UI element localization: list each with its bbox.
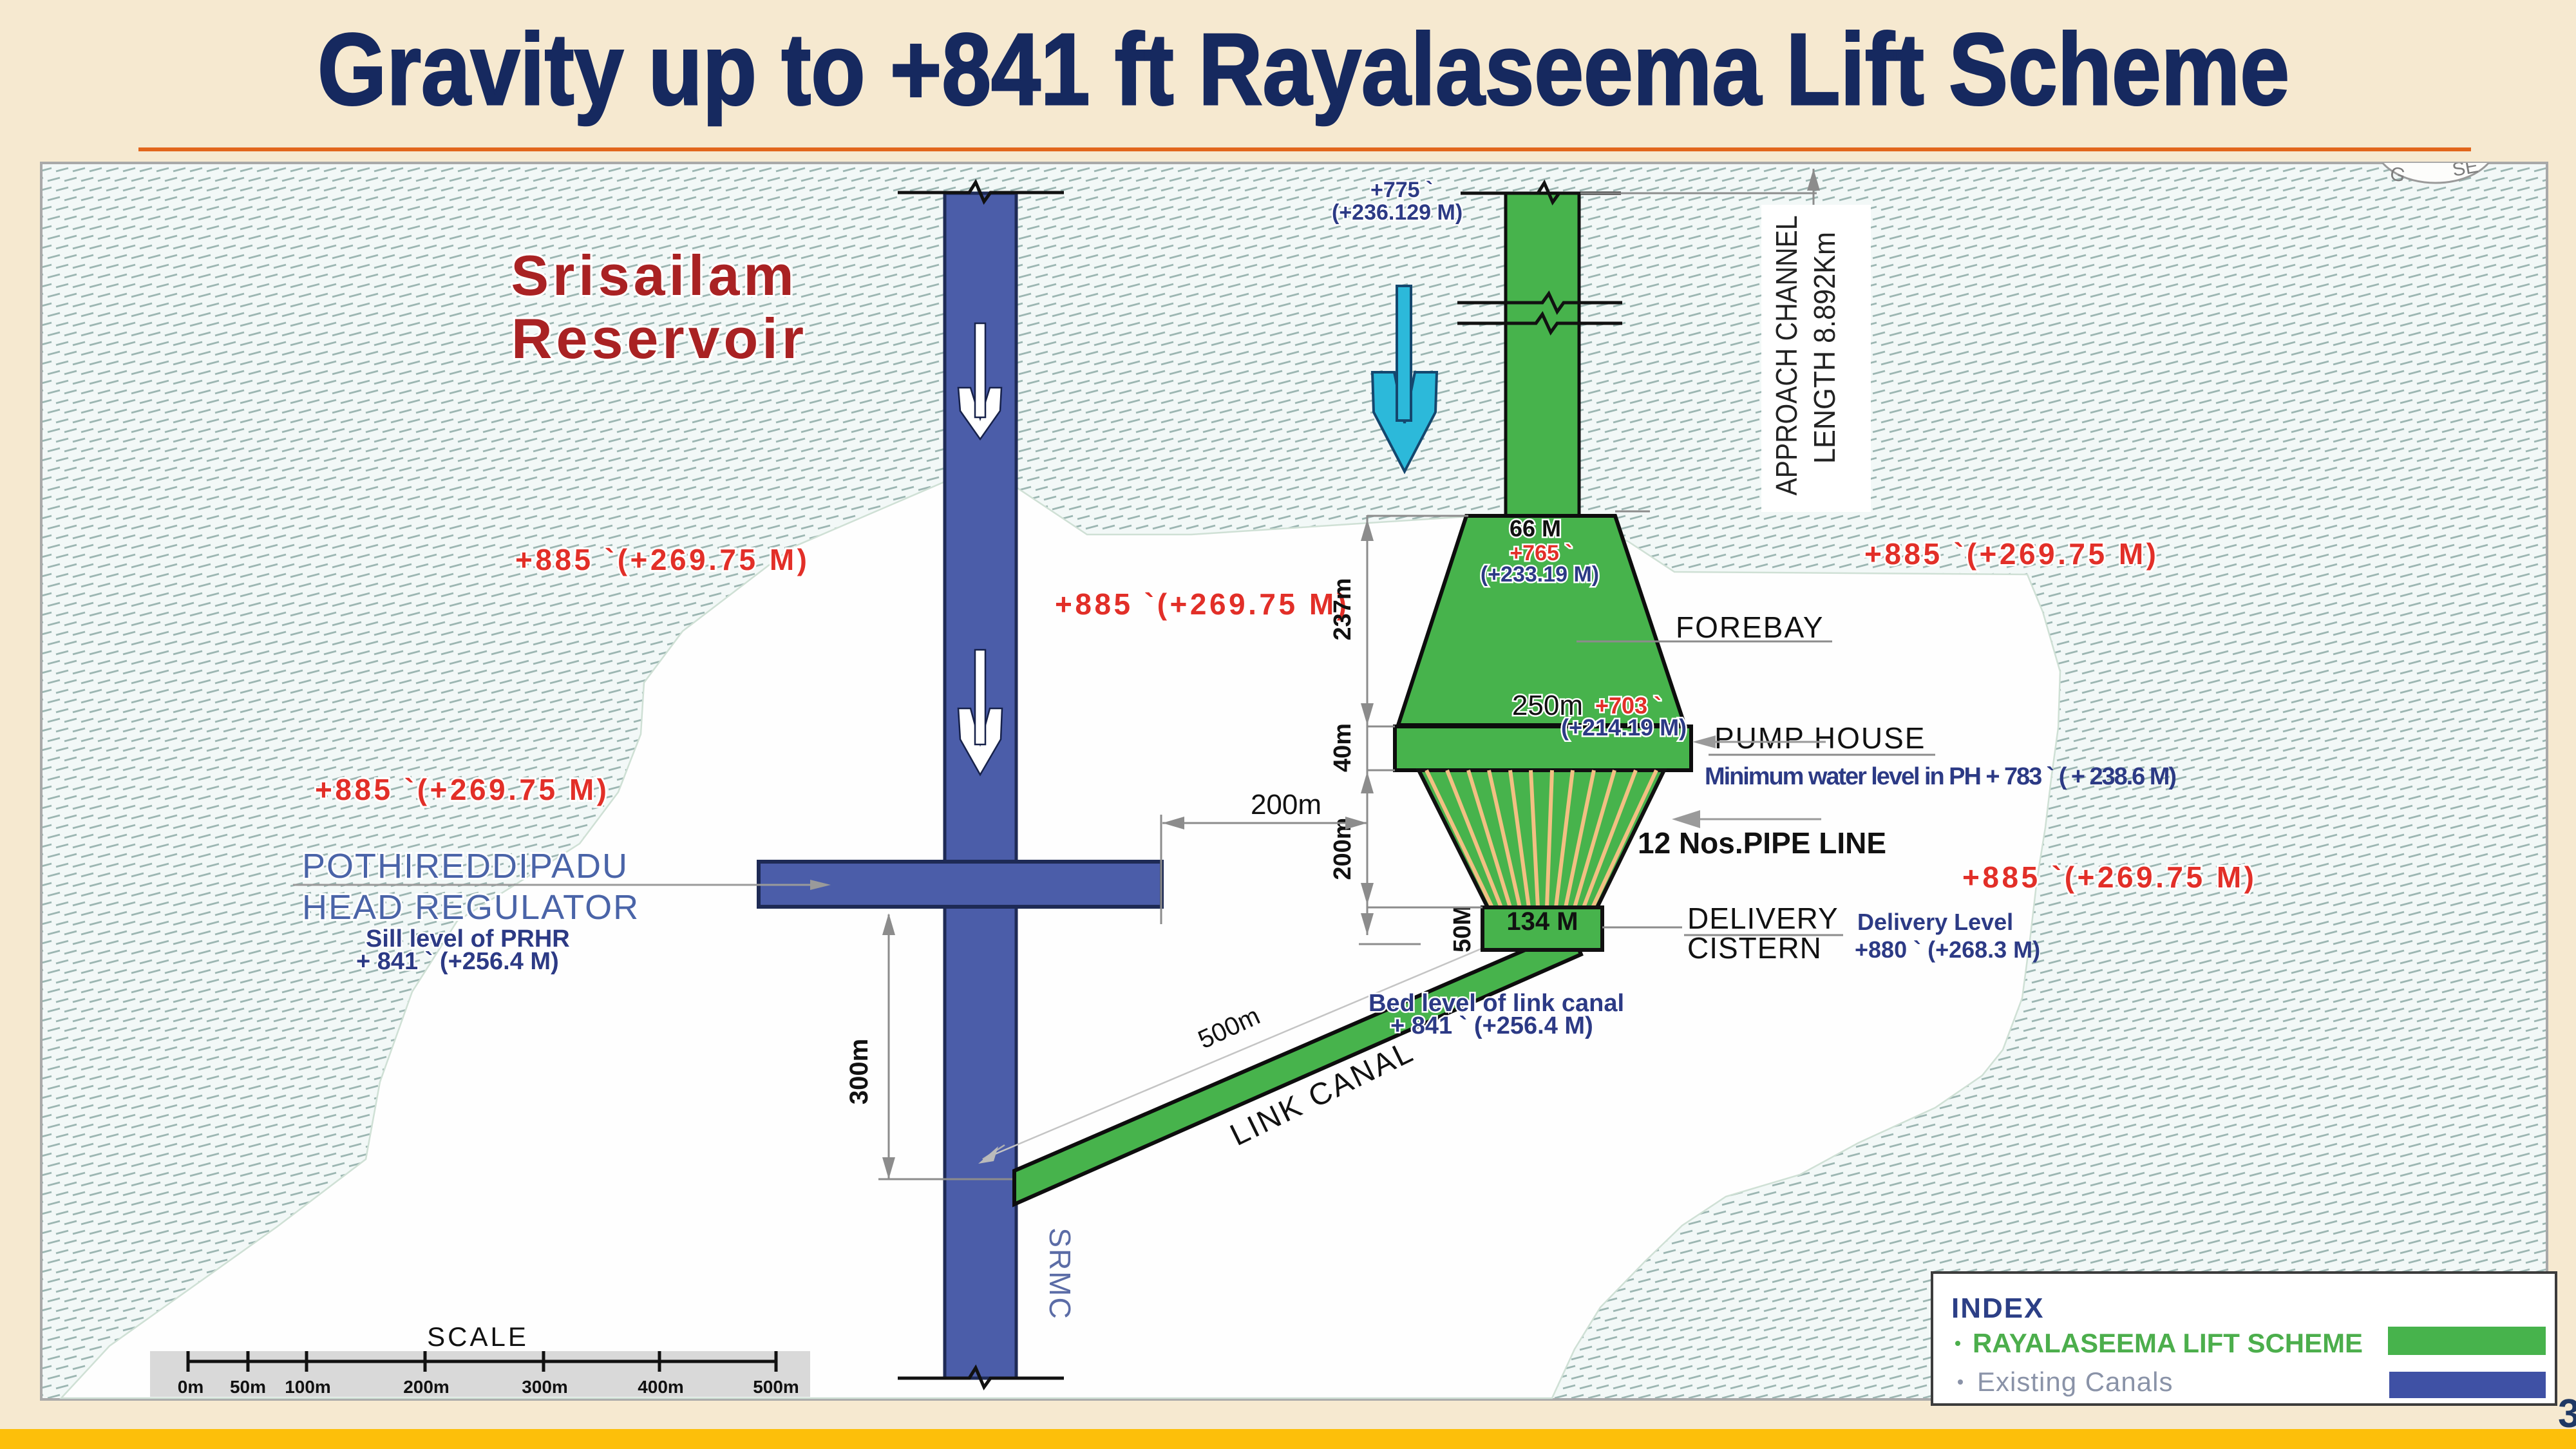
svg-text:+885 `(+269.75 M): +885 `(+269.75 M) [1055,587,1350,621]
svg-text:66 M: 66 M [1510,515,1561,542]
svg-text:300m: 300m [845,1039,873,1104]
svg-text:+885 `(+269.75 M): +885 `(+269.75 M) [315,773,610,806]
svg-text:(+214.19 M): (+214.19 M) [1561,714,1687,741]
svg-text:CISTERN: CISTERN [1687,931,1822,965]
svg-text:+ 841 ` (+256.4 M): + 841 ` (+256.4 M) [356,948,559,975]
svg-text:(+233.19 M): (+233.19 M) [1481,562,1599,587]
svg-text:Gravity up to +841 ft Rayalase: Gravity up to +841 ft Rayalaseema Lift S… [317,13,2289,126]
svg-text:DELIVERY: DELIVERY [1687,902,1839,935]
svg-text:Srisailam: Srisailam [511,243,797,307]
svg-text:+880 ` (+268.3 M): +880 ` (+268.3 M) [1855,936,2040,963]
svg-text:SCALE: SCALE [427,1321,529,1352]
svg-text:500m: 500m [753,1377,799,1397]
svg-text:40m: 40m [1329,723,1356,772]
svg-text:FOREBAY: FOREBAY [1676,611,1824,644]
svg-text:12 Nos.PIPE LINE: 12 Nos.PIPE LINE [1638,826,1886,860]
svg-text:(+236.129 M): (+236.129 M) [1332,200,1463,225]
svg-text:100m: 100m [285,1377,331,1397]
svg-text:50M: 50M [1449,905,1476,952]
svg-text:APPROACH CHANNEL: APPROACH CHANNEL [1770,216,1803,496]
svg-text:SRMC: SRMC [1043,1227,1077,1320]
svg-text:200m: 200m [403,1377,450,1397]
svg-text:+885 `(+269.75 M): +885 `(+269.75 M) [1864,537,2159,571]
svg-text:Existing Canals: Existing Canals [1977,1367,2173,1397]
svg-text:LENGTH 8.892Km: LENGTH 8.892Km [1808,232,1841,464]
svg-text:Reservoir: Reservoir [511,307,808,370]
svg-text:PUMP HOUSE: PUMP HOUSE [1714,721,1926,755]
svg-text:HEAD REGULATOR: HEAD REGULATOR [302,888,639,927]
svg-text:400m: 400m [638,1377,684,1397]
svg-text:+775 `: +775 ` [1370,178,1433,202]
svg-text:+885 `(+269.75 M): +885 `(+269.75 M) [515,543,810,576]
svg-text:0m: 0m [178,1377,204,1397]
svg-text:POTHIREDDIPADU: POTHIREDDIPADU [302,847,629,885]
svg-text:Minimum water level in PH + 78: Minimum water level in PH + 783 ` ( + 23… [1705,763,2177,790]
svg-text:134 M: 134 M [1506,907,1578,936]
svg-text:+885 `(+269.75 M): +885 `(+269.75 M) [1962,860,2257,894]
svg-text:+ 841 ` (+256.4 M): + 841 ` (+256.4 M) [1390,1012,1593,1039]
svg-text:50m: 50m [230,1377,266,1397]
svg-text:RAYALASEEMA LIFT SCHEME: RAYALASEEMA LIFT SCHEME [1973,1328,2363,1358]
svg-text:Delivery Level: Delivery Level [1857,909,2013,935]
svg-text:237m: 237m [1329,578,1356,640]
svg-text:200m: 200m [1251,789,1321,820]
svg-text:300m: 300m [522,1377,568,1397]
svg-text:INDEX: INDEX [1951,1293,2044,1324]
